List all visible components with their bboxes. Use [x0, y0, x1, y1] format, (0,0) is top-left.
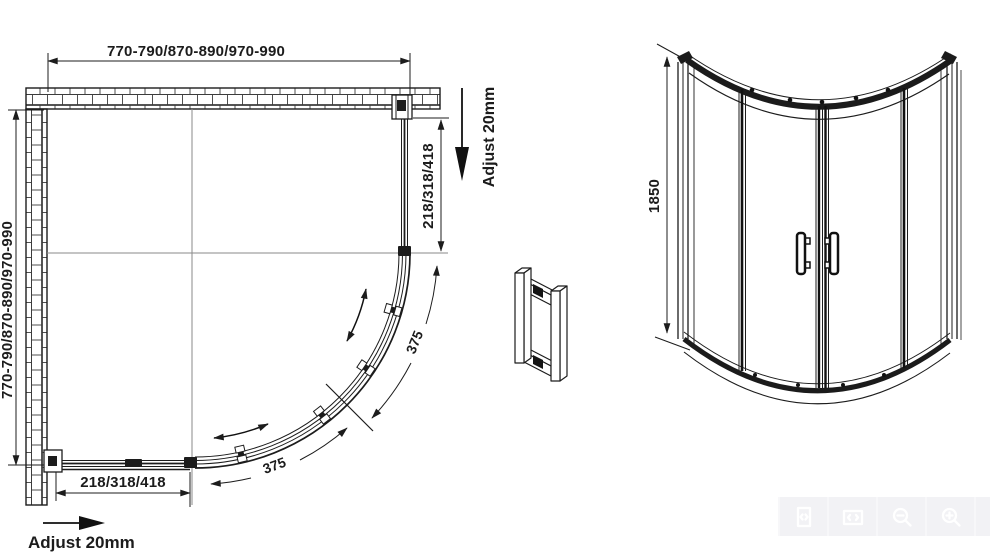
plan-adjust-bottom-label: Adjust 20mm: [28, 533, 135, 552]
plan-width-dim-label: 770-790/870-890/970-990: [107, 43, 285, 60]
elevation-top-track: [677, 51, 957, 119]
plan-adjust-right-label: Adjust 20mm: [481, 87, 498, 187]
plan-height-dim-label: 770-790/870-890/970-990: [0, 221, 16, 399]
plan-rollers: [235, 303, 402, 462]
elevation-height-dim-label: 1850: [646, 179, 663, 213]
plan-right-fixed-panel: [398, 119, 411, 256]
plan-top-wall-profile: [392, 95, 412, 119]
plan-adjust-arrow-down: [455, 88, 469, 181]
handle-front-bar: [515, 268, 531, 363]
elevation-bottom-track: [684, 332, 950, 404]
viewer-toolbar: [778, 497, 990, 536]
elevation-view: 1850: [646, 44, 961, 404]
plan-adjust-arrow-right: [43, 516, 105, 530]
elevation-door-handles: [797, 233, 838, 274]
handle-back-bar: [551, 286, 567, 381]
zoom-in-icon: [939, 505, 963, 529]
plan-bottom-wall-profile: [44, 450, 62, 472]
plan-left-wall: [26, 109, 47, 505]
plan-view: 770-790/870-890/970-990 770-790/870-890/…: [0, 43, 498, 552]
viewer-zoom-out-button[interactable]: [878, 497, 925, 536]
handle-detail: [515, 268, 567, 381]
plan-panel-dim-vertical-label: 218/318/418: [420, 143, 437, 229]
technical-drawing-canvas: 770-790/870-890/970-990 770-790/870-890/…: [0, 0, 990, 554]
viewer-expand-button[interactable]: [780, 497, 827, 536]
viewer-zoom-in-button[interactable]: [927, 497, 974, 536]
plan-door-dim-outer: [372, 266, 437, 418]
plan-top-wall: [26, 88, 440, 109]
zoom-out-icon: [890, 505, 914, 529]
expand-icon: [792, 505, 816, 529]
plan-door-dim-outer-label: 375: [403, 328, 427, 356]
viewer-partial-button[interactable]: [976, 497, 990, 536]
plan-bottom-fixed-panel: [47, 457, 197, 470]
drawing-svg: 770-790/870-890/970-990 770-790/870-890/…: [0, 0, 990, 554]
fit-width-icon: [841, 505, 865, 529]
plan-slide-direction-arrows: [214, 289, 366, 438]
viewer-fit-width-button[interactable]: [829, 497, 876, 536]
elevation-panel-dividers: [739, 88, 908, 388]
plan-panel-dim-horizontal-label: 218/318/418: [80, 474, 166, 491]
